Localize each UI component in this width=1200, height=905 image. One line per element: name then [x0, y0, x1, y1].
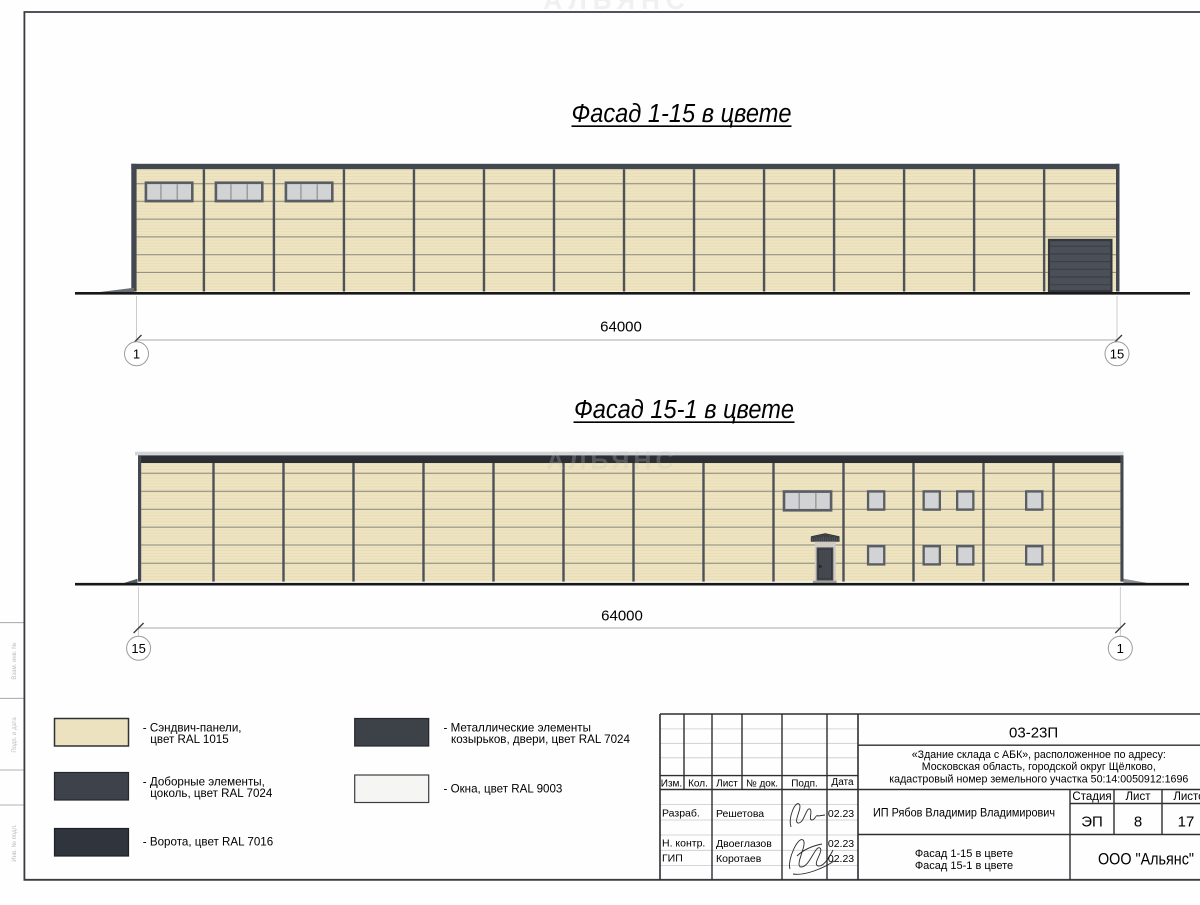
svg-text:Разраб.: Разраб. [662, 808, 700, 820]
svg-text:15: 15 [131, 641, 145, 656]
svg-text:15: 15 [1110, 346, 1124, 361]
svg-text:Фасад 1-15 в цвете: Фасад 1-15 в цвете [915, 848, 1013, 860]
svg-text:№ док.: № док. [746, 778, 778, 789]
svg-text:Стадия: Стадия [1072, 791, 1111, 803]
svg-text:Дата: Дата [831, 777, 854, 788]
svg-text:17: 17 [1178, 814, 1195, 831]
svg-text:- Ворота, цвет RAL 7016: - Ворота, цвет RAL 7016 [143, 836, 273, 849]
svg-text:02.23: 02.23 [828, 838, 854, 850]
svg-text:64000: 64000 [600, 319, 642, 336]
svg-text:козырьков, двери, цвет RAL 702: козырьков, двери, цвет RAL 7024 [451, 733, 630, 746]
svg-text:03-23П: 03-23П [1009, 725, 1058, 742]
svg-text:Подп. и дата: Подп. и дата [12, 717, 18, 753]
svg-text:ГИП: ГИП [662, 853, 683, 865]
svg-text:Листов: Листов [1173, 791, 1200, 803]
svg-text:кадастровый номер земельного у: кадастровый номер земельного участка 50:… [889, 774, 1188, 786]
svg-text:Московская область, городской: Московская область, городской округ Щёлк… [922, 761, 1156, 773]
svg-text:Изм.: Изм. [661, 778, 682, 789]
svg-text:Взам. инв. №: Взам. инв. № [11, 642, 18, 679]
svg-text:1: 1 [133, 346, 140, 361]
svg-text:Инв. № подл.: Инв. № подл. [11, 824, 18, 862]
svg-text:Лист: Лист [716, 778, 738, 789]
svg-text:Коротаев: Коротаев [716, 853, 762, 865]
svg-text:«Здание склада с АБК», располо: «Здание склада с АБК», расположенное по … [912, 749, 1166, 761]
svg-text:ООО "Альянс": ООО "Альянс" [1098, 850, 1194, 869]
svg-text:цвет RAL 1015: цвет RAL 1015 [150, 733, 228, 746]
svg-text:Н. контр.: Н. контр. [662, 838, 705, 850]
svg-text:ИП Рябов Владимир Владимирович: ИП Рябов Владимир Владимирович [873, 808, 1055, 820]
svg-text:Кол.: Кол. [688, 778, 708, 789]
svg-text:Фасад 15-1 в цвете: Фасад 15-1 в цвете [915, 860, 1013, 872]
svg-text:цоколь, цвет RAL 7024: цоколь, цвет RAL 7024 [150, 787, 273, 800]
svg-text:- Окна, цвет RAL 9003: - Окна, цвет RAL 9003 [444, 782, 563, 795]
svg-text:Фасад 15-1 в цвете: Фасад 15-1 в цвете [574, 396, 794, 424]
svg-text:02.23: 02.23 [828, 808, 854, 820]
svg-text:64000: 64000 [601, 608, 643, 625]
svg-text:Лист: Лист [1126, 791, 1152, 803]
svg-text:Решетова: Решетова [716, 808, 764, 820]
svg-text:8: 8 [1134, 814, 1142, 831]
svg-text:ЭП: ЭП [1081, 814, 1103, 831]
svg-text:1: 1 [1117, 641, 1124, 656]
svg-text:Двоеглазов: Двоеглазов [716, 838, 772, 850]
svg-text:02.23: 02.23 [828, 853, 854, 865]
svg-text:Подп.: Подп. [791, 778, 818, 789]
svg-text:АЛЬЯНС: АЛЬЯНС [547, 447, 678, 475]
svg-text:Фасад 1-15 в цвете: Фасад 1-15 в цвете [572, 100, 792, 128]
